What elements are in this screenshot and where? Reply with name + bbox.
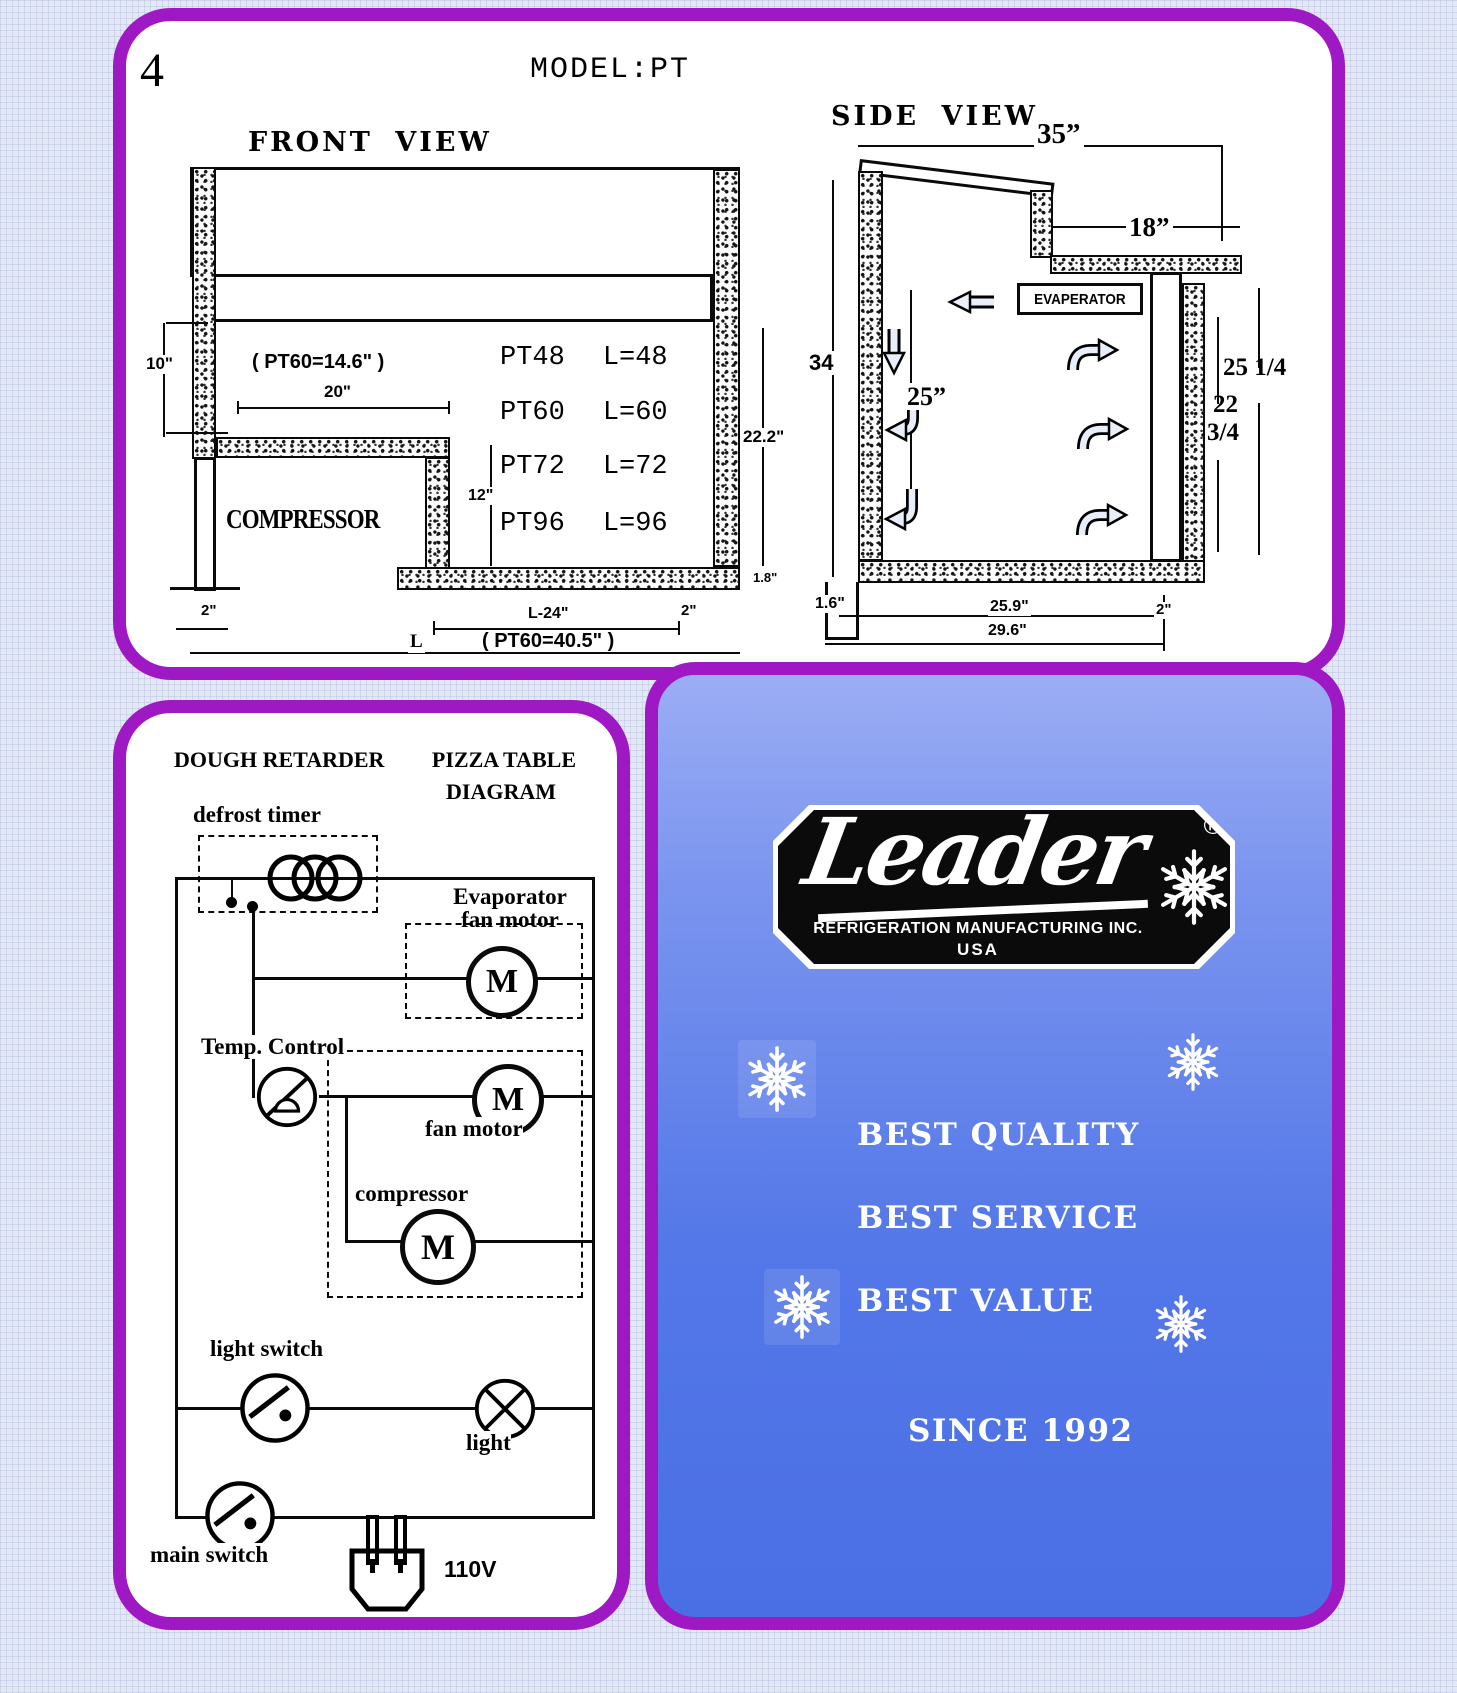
dim-296-line: [825, 643, 1163, 645]
dim-10in-ext-top: [166, 322, 208, 324]
front-view-title: FRONT VIEW: [248, 127, 492, 158]
dim-34-line: [832, 180, 834, 577]
pt60-note-bottom: ( PT60=40.5" ): [480, 630, 616, 652]
brand-panel: Leader REFRIGERATION MANUFACTURING INC. …: [645, 662, 1345, 1630]
dim-18-small: 1.8": [751, 571, 779, 585]
snowflake-patch: [738, 1040, 816, 1118]
evap-fan-label: Evaporator fan motor: [420, 885, 600, 931]
dim-l24-tick-l: [433, 621, 435, 635]
dim-2-sv: 2": [1154, 602, 1173, 619]
snowflake-patch: [1158, 1027, 1228, 1097]
contact-dot: [247, 901, 258, 912]
light-label: light: [466, 1431, 511, 1455]
side-lid: [858, 159, 1054, 198]
dim-10in: 10": [144, 355, 175, 374]
dim-2-right: 2": [679, 603, 698, 620]
side-bottom-hatch: [858, 560, 1205, 583]
voltage-label: 110V: [444, 1557, 496, 1581]
dim-20in-tick-r: [448, 401, 450, 414]
contact-dot: [226, 897, 237, 908]
front-left-foot-line: [170, 587, 240, 590]
snowflake-icon: [770, 1275, 834, 1339]
dim-10in-line: [163, 323, 165, 437]
dim-20in-line: [237, 407, 450, 409]
dim-296: 29.6": [986, 622, 1029, 640]
front-inner-wall-hatch: [425, 457, 450, 569]
pt60-note-top: ( PT60=14.6" ): [250, 351, 386, 373]
slogan-value: BEST VALUE: [857, 1283, 1095, 1319]
coil-symbol: [266, 854, 364, 902]
wiring-title-line2: DIAGRAM: [426, 779, 576, 805]
model-length: L=96: [603, 509, 668, 539]
page-number: 4: [140, 43, 164, 98]
model-length: L=72: [603, 452, 668, 482]
side-right-wall: [1150, 272, 1182, 562]
curve-arrow-icon: [1065, 328, 1121, 374]
registered-mark: ®: [1204, 812, 1222, 841]
dim-18: 18”: [1126, 213, 1173, 241]
front-left-wall-hatch: [192, 167, 216, 459]
plug-icon: [346, 1515, 434, 1615]
slogan-service: BEST SERVICE: [857, 1200, 1139, 1236]
dim-20in-tick-l: [237, 401, 239, 414]
dim-35: 35”: [1034, 119, 1084, 149]
dim-2234-line-b: [1258, 403, 1260, 555]
compressor-label: COMPRESSOR: [226, 504, 379, 535]
model-name: PT60: [500, 398, 565, 428]
evaporator-box: EVAPERATOR: [1017, 283, 1143, 315]
snowflake-patch: [1146, 1289, 1216, 1359]
dim-25: 25”: [904, 383, 949, 410]
model-length: L=48: [603, 343, 668, 373]
front-left-leg: [194, 457, 216, 591]
dim-22-34-a: 22: [1210, 392, 1241, 418]
wiring-panel: DOUGH RETARDER PIZZA TABLE DIAGRAM defro…: [113, 700, 630, 1630]
logo-line1: REFRIGERATION MANUFACTURING INC.: [778, 920, 1178, 938]
front-right-wall-hatch: [713, 169, 740, 567]
dim-L-line: [190, 652, 740, 654]
model-title: MODEL:PT: [530, 53, 690, 87]
front-top-counter: [190, 167, 740, 277]
slogan-quality: BEST QUALITY: [857, 1117, 1140, 1153]
dim-12: 12": [466, 487, 495, 505]
dim-12-line: [490, 445, 492, 566]
front-divider-hatch: [216, 437, 450, 458]
dim-22-34-b: 3/4: [1204, 420, 1242, 446]
model-name: PT48: [500, 343, 565, 373]
model-row: PT72L=72: [500, 452, 668, 482]
leader-badge-inner: Leader REFRIGERATION MANUFACTURING INC. …: [778, 810, 1230, 964]
side-right-wall-hatch: [1182, 283, 1205, 562]
curve-arrow-icon: [1075, 407, 1131, 453]
snowflake-icon: [1164, 1033, 1222, 1091]
snowflake-icon: [1156, 840, 1232, 934]
spec-sheet-page: 4 MODEL:PT FRONT VIEW COMPRESSOR 10" ( P…: [0, 0, 1457, 1693]
drawings-panel: 4 MODEL:PT FRONT VIEW COMPRESSOR 10" ( P…: [113, 8, 1345, 680]
front-mid-shelf: [213, 274, 713, 322]
snowflake-icon: [744, 1046, 810, 1112]
model-name: PT96: [500, 509, 565, 539]
dim-222: 22.2": [741, 428, 786, 447]
evaporator-label: EVAPERATOR: [1034, 291, 1126, 308]
light-switch-label: light switch: [210, 1337, 323, 1361]
dim-l24: L-24": [526, 605, 570, 623]
dim-259: 25.9": [988, 598, 1031, 616]
dim-10in-ext-bottom: [166, 432, 228, 434]
dim-l24-tick-r: [678, 621, 680, 635]
front-bottom-hatch: [397, 567, 740, 590]
wiring-title-row: DOUGH RETARDER PIZZA TABLE: [174, 747, 576, 773]
hook-arrow-icon: [878, 485, 928, 539]
side-step-wall-hatch: [1030, 190, 1053, 258]
wiring-title-left: DOUGH RETARDER: [174, 747, 384, 773]
model-row: PT48L=48: [500, 343, 668, 373]
slogan-since: SINCE 1992: [908, 1413, 1134, 1449]
fan-motor-label: fan motor: [425, 1117, 523, 1141]
leader-badge: Leader REFRIGERATION MANUFACTURING INC. …: [773, 805, 1235, 969]
logo-line2: USA: [778, 940, 1178, 960]
dim-L: L: [408, 632, 425, 653]
compressor-motor-symbol: M: [400, 1209, 476, 1285]
wire-left: [175, 877, 178, 1519]
leader-script-logo: Leader: [796, 798, 1151, 906]
dim-2-left-line: [176, 628, 228, 630]
model-length: L=60: [603, 398, 668, 428]
temp-control-symbol: [255, 1065, 319, 1129]
wiring-title-right: PIZZA TABLE: [432, 747, 576, 773]
side-view-title: SIDE VIEW: [831, 101, 1038, 132]
left-arrow-icon: [944, 289, 998, 315]
dim-2514-line-b: [1217, 460, 1219, 552]
snowflake-icon: [1152, 1295, 1210, 1353]
dim-34: 34: [807, 351, 835, 375]
dim-16: 1.6": [813, 595, 847, 613]
defrost-timer-label: defrost timer: [193, 803, 321, 827]
dim-222-line: [762, 328, 764, 566]
evap-fan-motor-symbol: M: [466, 946, 538, 1018]
temp-control-label: Temp. Control: [201, 1035, 344, 1059]
compressor-label-wiring: compressor: [355, 1182, 468, 1206]
side-back-counter-hatch: [1050, 255, 1242, 274]
model-name: PT72: [500, 452, 565, 482]
dim-20in: 20": [322, 383, 353, 402]
snowflake-patch: [764, 1269, 840, 1345]
main-switch-label: main switch: [150, 1543, 268, 1567]
light-switch-symbol: [238, 1371, 312, 1445]
curve-arrow-icon: [1074, 493, 1130, 539]
dim-25-14: 25 1/4: [1220, 355, 1289, 381]
down-arrow-icon: [879, 325, 909, 377]
wire-branch-a: [252, 903, 255, 1098]
wire-right: [592, 877, 595, 1519]
model-row: PT60L=60: [500, 398, 668, 428]
model-row: PT96L=96: [500, 509, 668, 539]
dim-2-left: 2": [199, 603, 218, 620]
